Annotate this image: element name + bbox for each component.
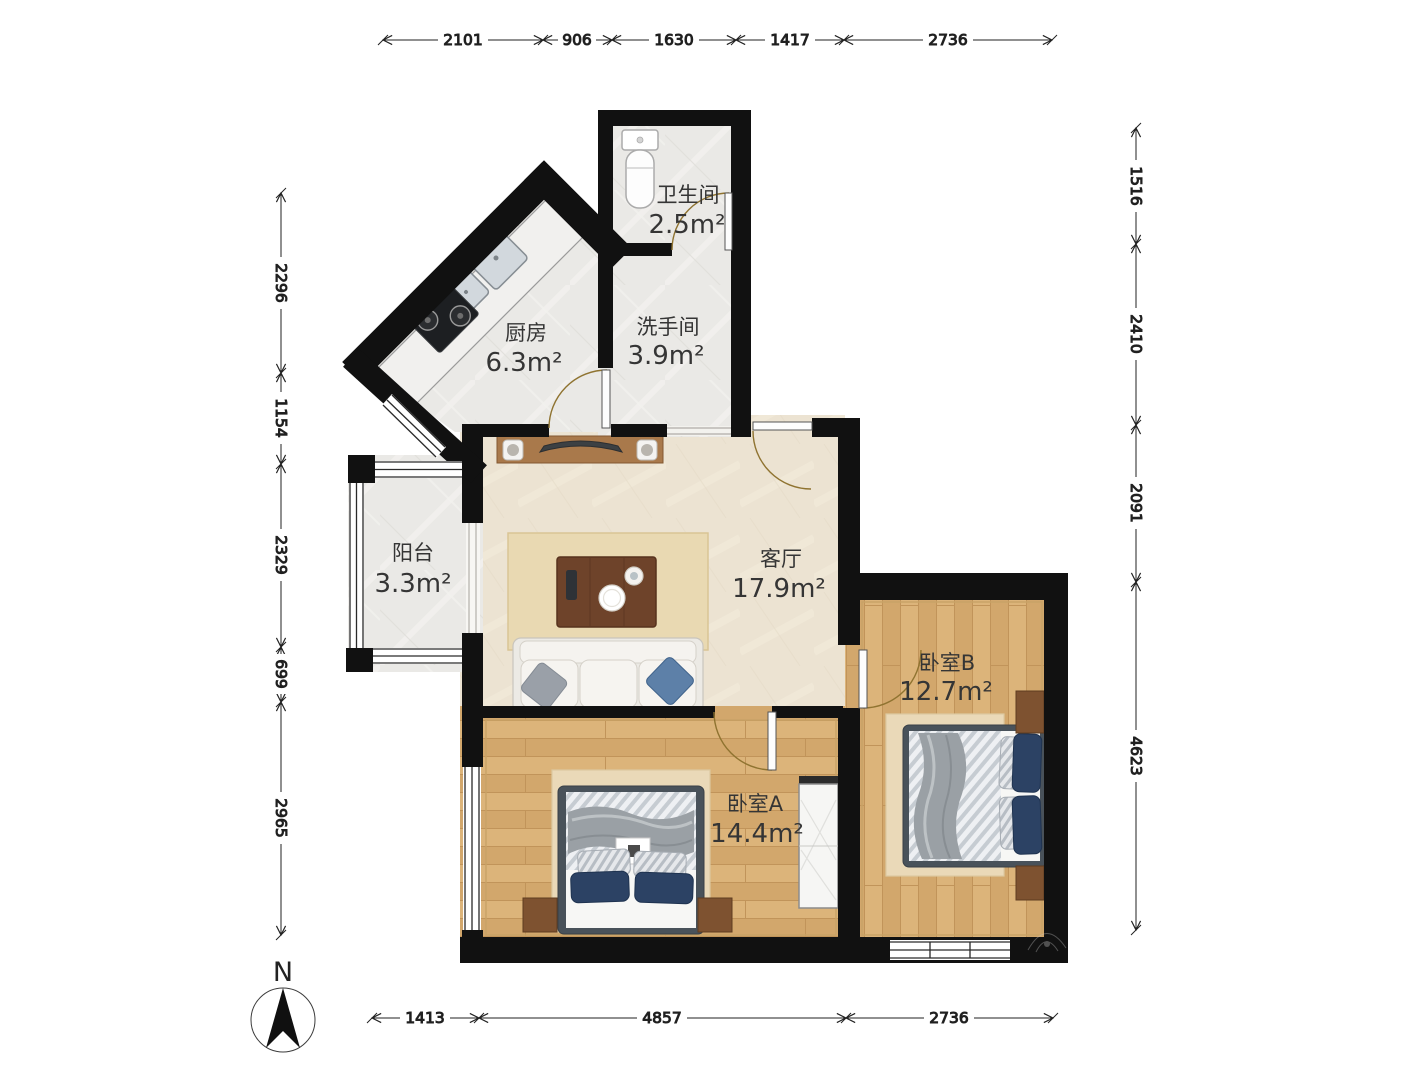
room-label-bedroom-b: 卧室B <box>919 651 975 675</box>
dim-bottom-2: 4857 <box>642 1009 681 1027</box>
bedroom-b-window <box>890 940 1010 960</box>
remote-icon <box>566 570 577 600</box>
compass: N <box>251 957 315 1052</box>
dim-top-1: 2101 <box>443 31 482 49</box>
floor-plan-svg: 贝壳找房 <box>0 0 1420 1068</box>
bedroom-b-furniture <box>886 691 1046 900</box>
dim-top-4: 1417 <box>770 31 809 49</box>
room-label-kitchen: 厨房 <box>505 321 547 345</box>
pillow-navy-icon <box>634 872 693 904</box>
balcony-window-top <box>375 461 462 478</box>
dim-left-2: 1154 <box>272 398 290 437</box>
room-label-bedroom-a: 卧室A <box>727 792 784 816</box>
nightstand-icon <box>1016 866 1044 900</box>
toilet-icon <box>622 130 658 208</box>
dim-right: 1516 2410 2091 4623 <box>1125 123 1147 935</box>
bedroom-a-window <box>463 767 481 930</box>
room-area-balcony: 3.3m² <box>374 569 451 599</box>
room-area-bedroom-a: 14.4m² <box>710 819 804 849</box>
dim-top-2: 906 <box>562 31 592 49</box>
tv-stand <box>497 436 663 463</box>
balcony-window-left <box>349 483 364 648</box>
room-area-bathroom: 2.5m² <box>648 210 725 240</box>
dim-bottom-3: 2736 <box>929 1009 968 1027</box>
room-area-bedroom-b: 12.7m² <box>899 677 993 707</box>
nightstand-icon <box>1016 691 1044 733</box>
floor-plan-page: 贝壳找房 <box>0 0 1420 1068</box>
dim-left-3: 2329 <box>272 535 290 574</box>
dim-left-4: 699 <box>272 659 290 689</box>
dim-right-3: 2091 <box>1127 483 1145 522</box>
dim-bottom-1: 1413 <box>405 1009 444 1027</box>
room-area-washroom: 3.9m² <box>627 341 704 371</box>
room-label-washroom: 洗手间 <box>637 315 700 339</box>
dim-right-2: 2410 <box>1127 314 1145 353</box>
room-area-kitchen: 6.3m² <box>485 348 562 378</box>
room-label-living: 客厅 <box>760 547 802 571</box>
nightstand-icon <box>698 898 732 932</box>
dim-left-5: 2965 <box>272 798 290 837</box>
dim-bottom: 1413 4857 2736 <box>367 1007 1058 1029</box>
north-label: N <box>273 957 293 988</box>
dim-right-4: 4623 <box>1127 736 1145 775</box>
room-area-living: 17.9m² <box>732 574 826 604</box>
sofa <box>513 638 703 713</box>
room-label-balcony: 阳台 <box>392 541 434 565</box>
wardrobe-a <box>799 776 838 908</box>
balcony-threshold <box>466 523 480 633</box>
pillow-navy-icon <box>1012 734 1042 793</box>
dim-left-1: 2296 <box>272 263 290 302</box>
pillow-navy-icon <box>1012 796 1042 855</box>
dim-top-3: 1630 <box>654 31 693 49</box>
dim-top-5: 2736 <box>928 31 967 49</box>
dim-left: 2296 1154 2329 699 2965 <box>270 188 292 940</box>
room-label-bathroom: 卫生间 <box>657 183 720 207</box>
nightstand-icon <box>523 898 557 932</box>
washroom-threshold <box>667 426 731 436</box>
north-arrow-icon <box>266 988 300 1048</box>
bathroom-washroom-floor <box>598 110 751 437</box>
balcony-window-bottom <box>373 648 462 664</box>
coffee-table <box>557 557 656 627</box>
dim-top: 2101 906 1630 1417 2736 <box>378 29 1057 51</box>
pillow-navy-icon <box>570 871 629 903</box>
dim-right-1: 1516 <box>1127 166 1145 205</box>
